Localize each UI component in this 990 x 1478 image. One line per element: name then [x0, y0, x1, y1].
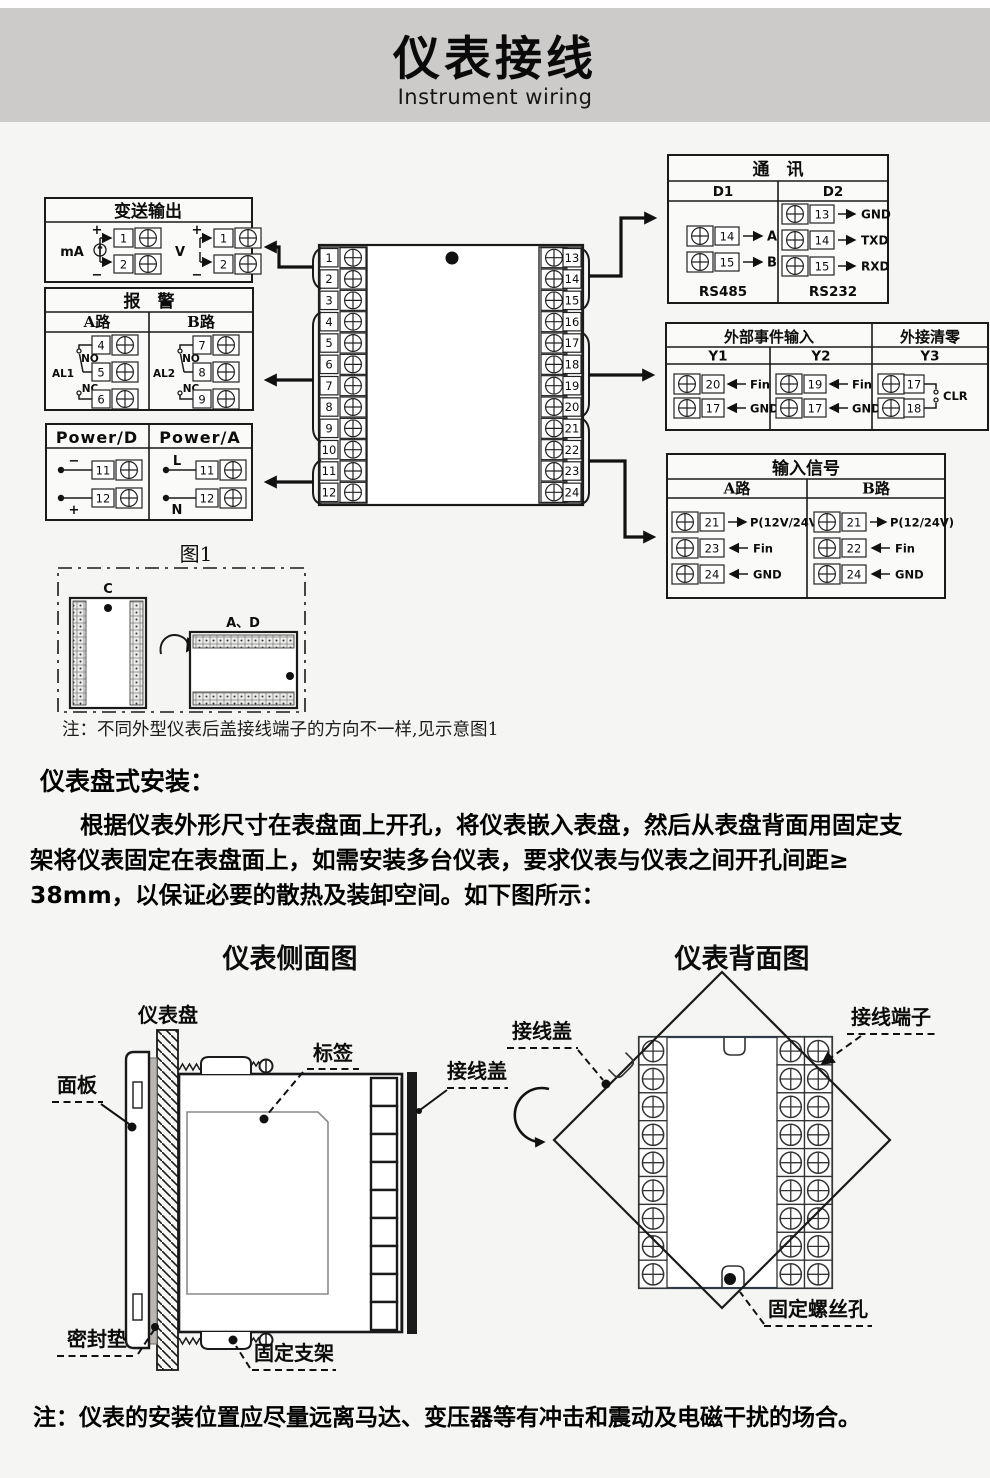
terminal-number: 21 — [705, 516, 720, 530]
terminal-cell — [371, 1134, 397, 1162]
y2-label: Y2 — [810, 349, 830, 365]
terminal-number: 24 — [565, 486, 580, 500]
terminal-number: 13 — [815, 208, 830, 222]
orientation-dot — [286, 672, 294, 680]
event-title: 外部事件输入 — [723, 328, 814, 346]
screw-terminal-icon — [340, 354, 366, 374]
screw-terminal-icon — [672, 538, 698, 558]
rs485-a-label: A — [767, 230, 777, 245]
screw-terminal-icon — [782, 256, 808, 276]
power-box: Power/D Power/A − 11 + 12 L 11 N 12 — [46, 424, 252, 520]
terminal-number: 9 — [198, 393, 205, 407]
orientation-dot — [104, 604, 112, 612]
screw-terminal-icon — [235, 228, 261, 248]
screw-terminal-icon — [340, 333, 366, 353]
terminal-number: 22 — [847, 542, 862, 556]
terminal-number: 18 — [565, 358, 580, 372]
side-view-title: 仪表侧面图 — [222, 944, 358, 975]
channel-b-label: B路 — [187, 313, 216, 331]
terminal-number: 16 — [565, 315, 580, 329]
screw-terminal-icon — [814, 538, 840, 558]
screw-terminal-icon — [213, 389, 239, 409]
screw-terminal-icon — [112, 389, 138, 409]
channel-a-label: A路 — [83, 313, 112, 331]
wiring-diagram: 变送输出 + mA − 1 2 + V − 1 2 — [0, 130, 990, 730]
screw-terminal-icon — [642, 1264, 663, 1285]
terminal-number: 1 — [220, 232, 227, 246]
terminal-number: 8 — [198, 366, 205, 380]
alarm-title: 报 警 — [124, 291, 175, 312]
power-out-label: P(12V/24V) — [750, 516, 823, 530]
screw-terminal-icon — [340, 376, 366, 396]
fin-label: Fin — [852, 378, 872, 392]
screw-terminal-icon — [776, 374, 802, 394]
al2-label: AL2 — [153, 368, 175, 380]
terminal-number: 5 — [97, 366, 104, 380]
rs485-b-label: B — [767, 256, 777, 271]
figure1: 图1 C A、D — [58, 542, 305, 712]
screw-terminal-icon — [687, 252, 713, 272]
terminal-number: 12 — [96, 492, 111, 506]
screw-terminal-icon — [780, 1068, 801, 1089]
terminal-number: 14 — [720, 230, 735, 244]
back-left-terminals — [639, 1037, 667, 1288]
screw-terminal-icon — [808, 1180, 829, 1201]
back-view: 仪表背面图 接线盖 接线端子 固定螺丝孔 — [507, 944, 936, 1326]
terminal-number: 17 — [706, 402, 721, 416]
screw-terminal-icon — [782, 230, 808, 250]
top-strip — [0, 0, 990, 8]
type-c-label: C — [103, 582, 113, 597]
terminal-number: 20 — [565, 400, 580, 414]
terminal-number: 2 — [120, 258, 127, 272]
screw-terminal-icon — [235, 254, 261, 274]
screw-terminal-icon — [878, 398, 904, 418]
terminal-number: 20 — [706, 378, 721, 392]
terminal-number: 17 — [808, 402, 823, 416]
fixing-bracket-top — [201, 1057, 251, 1074]
screw-terminal-icon — [782, 204, 808, 224]
front-panel-label: 面板 — [57, 1073, 98, 1097]
panel-board-label: 仪表盘 — [137, 1003, 198, 1027]
screw-terminal-icon — [340, 440, 366, 460]
terminal-number: 1 — [325, 251, 332, 265]
line-label: L — [173, 454, 181, 469]
title-band: 仪表接线 Instrument wiring — [0, 8, 990, 122]
page-subtitle: Instrument wiring — [0, 85, 990, 109]
ma-label: mA — [60, 245, 84, 260]
terminal-number: 19 — [808, 378, 823, 392]
screw-terminal-icon — [808, 1068, 829, 1089]
terminal-number: 6 — [97, 393, 104, 407]
wiring-cover-label: 接线盖 — [512, 1019, 572, 1043]
terminal-number: 2 — [325, 272, 332, 286]
fixing-bracket-label: 固定支架 — [254, 1341, 334, 1365]
transmitter-title: 变送输出 — [114, 201, 182, 222]
page-title: 仪表接线 — [0, 8, 990, 89]
screw-terminal-icon — [116, 488, 142, 508]
screw-terminal-icon — [340, 312, 366, 332]
terminal-number: 24 — [847, 568, 862, 582]
fin-label: Fin — [895, 542, 915, 556]
type-ad-label: A、D — [226, 616, 260, 631]
figure1-note: 注：不同外型仪表后盖接线端子的方向不一样,见示意图1 — [62, 716, 499, 741]
external-event-box: 外部事件输入 外接清零 Y1 Y2 Y3 20 Fin 17 GND 19 Fi… — [666, 323, 988, 430]
rs485-label: RS485 — [699, 284, 747, 300]
screw-terminal-icon — [340, 418, 366, 438]
terminal-number: 11 — [200, 464, 215, 478]
v-label: V — [175, 245, 185, 260]
transmitter-output-box: 变送输出 + mA − 1 2 + V − 1 2 — [45, 198, 261, 283]
gnd-label: GND — [861, 208, 891, 222]
terminal-number: 21 — [847, 516, 862, 530]
screw-terminal-icon — [642, 1068, 663, 1089]
front-panel — [126, 1052, 149, 1348]
side-view: 仪表侧面图 仪表盘 面板 标 — [52, 944, 508, 1370]
screw-terminal-icon — [780, 1096, 801, 1117]
comm-title: 通 讯 — [753, 160, 804, 180]
plus-sign: + — [69, 503, 80, 518]
installation-views: 仪表侧面图 仪表盘 面板 标 — [0, 930, 990, 1400]
screw-terminal-icon — [220, 460, 246, 480]
screw-terminal-icon — [878, 374, 904, 394]
rotate-arrow-icon — [515, 1088, 549, 1142]
rs232-label: RS232 — [809, 284, 857, 300]
terminal-number: 4 — [325, 315, 332, 329]
screw-terminal-icon — [642, 1096, 663, 1117]
terminal-number: 21 — [565, 422, 580, 436]
screw-terminal-icon — [780, 1208, 801, 1229]
screw-terminal-icon — [340, 397, 366, 417]
screw-terminal-icon — [340, 482, 366, 502]
screw-terminal-icon — [808, 1124, 829, 1145]
fin-label: Fin — [750, 378, 770, 392]
plus-sign: + — [92, 223, 103, 238]
tag-label: 标签 — [313, 1041, 354, 1065]
terminal-number: 24 — [705, 568, 720, 582]
terminal-number: 22 — [565, 443, 580, 457]
terminal-number: 12 — [200, 492, 215, 506]
install-heading: 仪表盘式安装： — [40, 762, 215, 798]
screw-terminal-icon — [340, 290, 366, 310]
screw-terminal-icon — [642, 1041, 663, 1062]
alarm-box: 报 警 A路 B路 AL1 NO NC 4 5 6 AL2 NO NC 7 — [45, 288, 253, 410]
power-d-label: Power/D — [56, 428, 138, 447]
terminal-number: 7 — [198, 339, 205, 353]
terminal-cell — [371, 1246, 397, 1274]
screw-terminal-icon — [135, 228, 161, 248]
screw-terminal-icon — [687, 226, 713, 246]
fixing-bracket-bottom — [201, 1332, 251, 1349]
install-paragraph: 根据仪表外形尺寸在表盘面上开孔，将仪表嵌入表盘，然后从表盘背面用固定支 架将仪表… — [30, 808, 975, 913]
terminal-cover — [407, 1072, 417, 1334]
screw-terminal-icon — [340, 461, 366, 481]
power-out-label: P(12/24V) — [890, 516, 954, 530]
screw-terminal-icon — [340, 248, 366, 268]
screw-terminal-icon — [674, 374, 700, 394]
gnd-label: GND — [753, 568, 782, 582]
terminal-number: 2 — [220, 258, 227, 272]
screw-terminal-icon — [672, 512, 698, 532]
screw-terminal-icon — [220, 488, 246, 508]
screw-terminal-icon — [808, 1236, 829, 1257]
terminal-number: 14 — [815, 234, 830, 248]
screw-terminal-icon — [112, 335, 138, 355]
screw-terminal-icon — [340, 269, 366, 289]
terminal-number: 18 — [907, 402, 922, 416]
terminal-number: 14 — [565, 272, 580, 286]
terminal-number: 5 — [325, 336, 332, 350]
terminal-number: 4 — [97, 339, 104, 353]
terminal-number: 6 — [325, 358, 332, 372]
communication-box: 通 讯 D1 D2 14 A 15 B RS485 13 GND 14 TXD — [668, 155, 891, 303]
terminal-number: 23 — [565, 464, 580, 478]
terminal-number: 3 — [325, 294, 332, 308]
install-line: 根据仪表外形尺寸在表盘面上开孔，将仪表嵌入表盘，然后从表盘背面用固定支 — [30, 808, 975, 843]
footer-note: 注：仪表的安装位置应尽量远离马达、变压器等有冲击和震动及电磁干扰的场合。 — [33, 1398, 861, 1432]
txd-label: TXD — [861, 234, 888, 248]
figure1-caption: 图1 — [180, 542, 213, 566]
terminal-number: 15 — [565, 294, 580, 308]
screw-terminal-icon — [642, 1152, 663, 1173]
install-line: 38mm，以保证必要的散热及装卸空间。如下图所示： — [30, 878, 975, 913]
terminal-number: 15 — [815, 260, 830, 274]
rotate-arrow-icon — [161, 635, 189, 654]
terminal-number: 17 — [907, 378, 922, 392]
rxd-label: RXD — [861, 260, 889, 274]
clr-label: CLR — [943, 389, 968, 403]
screw-terminal-icon — [780, 1180, 801, 1201]
terminal-number: 23 — [705, 542, 720, 556]
terminal-number: 1 — [120, 232, 127, 246]
terminal-cell — [371, 1218, 397, 1246]
terminal-number: 7 — [325, 379, 332, 393]
screw-terminal-icon — [780, 1124, 801, 1145]
d1-label: D1 — [713, 184, 734, 200]
screw-terminal-icon — [814, 564, 840, 584]
channel-a-label: A路 — [723, 480, 752, 498]
wiring-cover-label: 接线盖 — [447, 1059, 507, 1083]
fin-label: Fin — [753, 542, 773, 556]
terminal-cell — [371, 1162, 397, 1190]
screw-terminal-icon — [780, 1041, 801, 1062]
screw-terminal-icon — [814, 512, 840, 532]
screw-terminal-icon — [674, 398, 700, 418]
screw-terminal-icon — [213, 335, 239, 355]
terminal-number: 10 — [322, 443, 337, 457]
terminal-cell — [371, 1190, 397, 1218]
screw-terminal-icon — [808, 1264, 829, 1285]
screw-terminal-icon — [808, 1152, 829, 1173]
screw-terminal-icon — [780, 1152, 801, 1173]
gnd-label: GND — [750, 402, 779, 416]
input-signal-box: 输入信号 A路 B路 21 P(12V/24V) 23 Fin 24 GND 2… — [667, 454, 954, 598]
terminal-cell — [371, 1302, 397, 1330]
terminal-number: 13 — [565, 251, 580, 265]
power-a-label: Power/A — [159, 428, 240, 447]
channel-b-label: B路 — [862, 480, 891, 498]
center-terminal-block: 123456789101112 131415161718192021222324 — [313, 245, 589, 505]
screw-terminal-icon — [112, 362, 138, 382]
neutral-label: N — [172, 503, 183, 518]
screw-terminal-icon — [116, 460, 142, 480]
minus-sign: − — [192, 268, 203, 283]
d2-label: D2 — [823, 184, 844, 200]
terminal-number: 11 — [322, 464, 337, 478]
manual-page: 仪表接线 Instrument wiring — [0, 0, 990, 1478]
al1-label: AL1 — [52, 368, 74, 380]
terminal-number: 8 — [325, 400, 332, 414]
screw-terminal-icon — [642, 1124, 663, 1145]
terminal-number: 11 — [96, 464, 111, 478]
terminal-number: 9 — [325, 422, 332, 436]
gnd-label: GND — [852, 402, 881, 416]
screw-terminal-icon — [642, 1208, 663, 1229]
minus-sign: − — [92, 268, 103, 283]
screw-terminal-icon — [135, 254, 161, 274]
orientation-dot — [446, 252, 459, 265]
terminal-cell — [371, 1274, 397, 1302]
screw-terminal-icon — [642, 1180, 663, 1201]
y3-label: Y3 — [919, 349, 939, 365]
terminal-number: 15 — [720, 256, 735, 270]
terminal-cell — [371, 1078, 397, 1106]
screw-hole-label: 固定螺丝孔 — [768, 1297, 868, 1321]
terminal-strip — [371, 1078, 397, 1330]
clear-title: 外接清零 — [899, 328, 961, 346]
screw-terminal-icon — [808, 1041, 829, 1062]
screw-terminal-icon — [808, 1096, 829, 1117]
y1-label: Y1 — [707, 349, 727, 365]
gnd-label: GND — [895, 568, 924, 582]
screw-terminal-icon — [213, 362, 239, 382]
back-view-title: 仪表背面图 — [674, 944, 810, 975]
screw-terminal-icon — [776, 398, 802, 418]
input-title: 输入信号 — [772, 458, 840, 479]
screw-terminal-icon — [780, 1264, 801, 1285]
terminal-number: 19 — [565, 379, 580, 393]
terminal-label: 接线端子 — [851, 1005, 931, 1029]
terminal-number: 17 — [565, 336, 580, 350]
terminal-number: 12 — [322, 486, 337, 500]
install-line: 架将仪表固定在表盘面上，如需安装多台仪表，要求仪表与仪表之间开孔间距≥ — [30, 843, 975, 878]
fixing-screw-hole — [724, 1273, 736, 1285]
minus-sign: − — [69, 454, 80, 469]
gasket-label: 密封垫 — [67, 1327, 127, 1351]
terminal-cell — [371, 1106, 397, 1134]
panel-board — [157, 1030, 178, 1370]
screw-terminal-icon — [672, 564, 698, 584]
plus-sign: + — [192, 223, 203, 238]
